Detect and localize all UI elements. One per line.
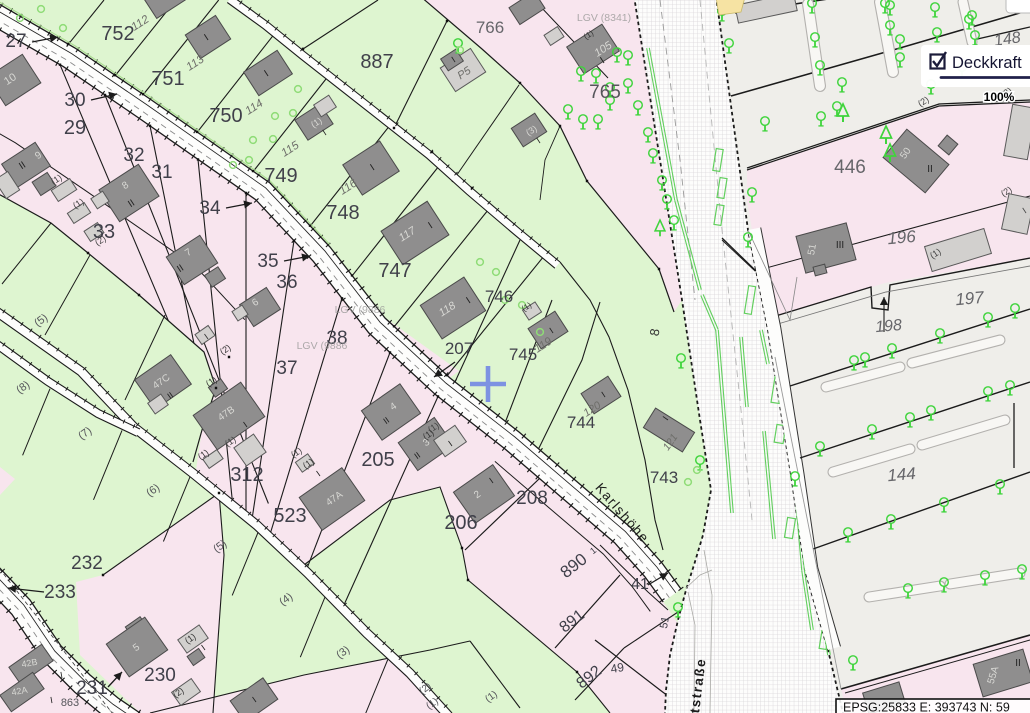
svg-text:750: 750 [209, 105, 242, 127]
svg-text:34: 34 [199, 198, 221, 219]
svg-text:446: 446 [834, 157, 866, 178]
svg-text:746: 746 [485, 287, 513, 306]
svg-text:27: 27 [5, 31, 26, 52]
svg-text:205: 205 [361, 449, 394, 471]
svg-text:LGV (9886: LGV (9886 [335, 304, 386, 316]
svg-text:31: 31 [151, 162, 172, 183]
svg-text:100%: 100% [984, 90, 1015, 104]
svg-text:230: 230 [144, 665, 176, 686]
svg-text:36: 36 [276, 272, 297, 293]
svg-text:LGV (9886: LGV (9886 [297, 340, 348, 352]
svg-text:766: 766 [476, 18, 504, 37]
svg-text:LGV (8341): LGV (8341) [577, 12, 631, 24]
svg-text:752: 752 [101, 23, 134, 45]
svg-text:312: 312 [230, 464, 263, 486]
svg-text:887: 887 [360, 51, 393, 73]
svg-text:233: 233 [44, 582, 76, 603]
svg-text:208: 208 [516, 488, 548, 509]
svg-text:II: II [927, 164, 933, 175]
svg-text:743: 743 [650, 468, 678, 487]
svg-text:197: 197 [955, 288, 985, 309]
svg-text:144: 144 [887, 464, 917, 485]
svg-text:EPSG:25833 E: 393743 N: 59: EPSG:25833 E: 393743 N: 59 [843, 701, 1010, 713]
svg-text:41: 41 [631, 576, 649, 593]
svg-text:523: 523 [273, 505, 306, 527]
svg-text:231: 231 [76, 678, 108, 699]
svg-text:749: 749 [264, 165, 297, 187]
svg-text:30: 30 [64, 90, 85, 111]
svg-text:198: 198 [875, 317, 903, 336]
svg-text:32: 32 [123, 145, 144, 166]
svg-text:207: 207 [445, 339, 473, 358]
svg-text:49: 49 [610, 660, 626, 676]
svg-text:765: 765 [589, 82, 621, 103]
svg-text:232: 232 [71, 553, 103, 574]
svg-text:206: 206 [444, 512, 477, 534]
svg-text:II: II [1015, 658, 1021, 669]
svg-text:Deckkraft: Deckkraft [952, 54, 1022, 72]
svg-text:751: 751 [151, 68, 184, 90]
svg-text:51: 51 [658, 615, 672, 629]
svg-text:863: 863 [61, 697, 79, 709]
svg-text:748: 748 [326, 202, 359, 224]
svg-text:III: III [836, 240, 844, 251]
svg-text:35: 35 [257, 251, 278, 272]
svg-text:37: 37 [276, 358, 297, 379]
svg-text:747: 747 [378, 260, 411, 282]
svg-text:29: 29 [64, 117, 86, 139]
svg-text:196: 196 [887, 227, 917, 248]
